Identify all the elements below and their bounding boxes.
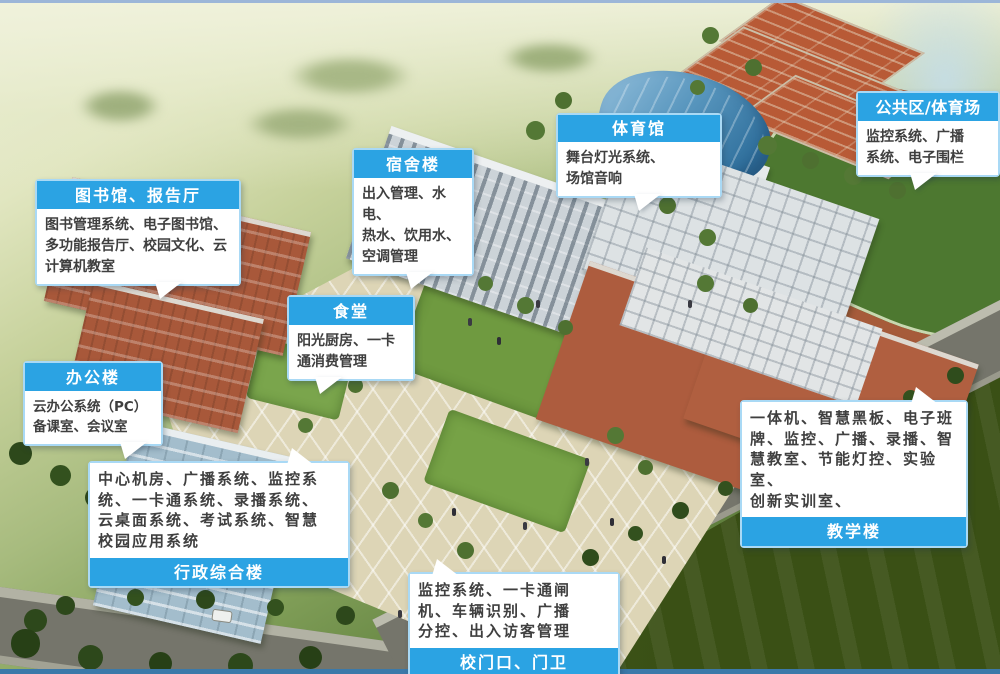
callout-tail-icon [910, 173, 937, 190]
callout-dormitory-body: 出入管理、水电、 热水、饮用水、 空调管理 [354, 178, 472, 274]
callout-admin-body: 中心机房、广播系统、监控系 统、一卡通系统、录播系统、 云桌面系统、考试系统、智… [90, 463, 348, 558]
callout-gymnasium: 体育馆 舞台灯光系统、 场馆音响 [556, 113, 722, 198]
callout-dormitory-title: 宿舍楼 [354, 150, 472, 178]
callout-office-body: 云办公系统（PC） 备课室、会议室 [25, 391, 161, 444]
callout-tail-icon [120, 442, 147, 459]
callout-canteen: 食堂 阳光厨房、一卡 通消费管理 [287, 295, 415, 381]
car-on-road [211, 609, 232, 624]
callout-admin-title: 行政综合楼 [90, 558, 348, 586]
callout-library: 图书馆、报告厅 图书管理系统、电子图书馆、 多功能报告厅、校园文化、云 计算机教… [35, 179, 241, 286]
callout-library-title: 图书馆、报告厅 [37, 181, 239, 209]
callout-gymnasium-body: 舞台灯光系统、 场馆音响 [558, 142, 720, 196]
callout-gate-body: 监控系统、一卡通闸 机、车辆识别、广播 分控、出入访客管理 [410, 574, 618, 648]
callout-tail-icon [406, 272, 433, 289]
callout-library-body: 图书管理系统、电子图书馆、 多功能报告厅、校园文化、云 计算机教室 [37, 209, 239, 284]
smart-campus-aerial-diagram: 图书馆、报告厅 图书管理系统、电子图书馆、 多功能报告厅、校园文化、云 计算机教… [0, 0, 1000, 674]
callout-public-area-body: 监控系统、广播 系统、电子围栏 [858, 121, 998, 175]
callout-teaching-body: 一体机、智慧黑板、电子班 牌、监控、广播、录播、智 慧教室、节能灯控、实验室、 … [742, 402, 966, 517]
callout-school-gate: 监控系统、一卡通闸 机、车辆识别、广播 分控、出入访客管理 校门口、门卫 [408, 572, 620, 674]
callout-tail-icon [287, 448, 314, 465]
callout-dormitory: 宿舍楼 出入管理、水电、 热水、饮用水、 空调管理 [352, 148, 474, 276]
callout-teaching-building: 一体机、智慧黑板、电子班 牌、监控、广播、录播、智 慧教室、节能灯控、实验室、 … [740, 400, 968, 548]
callout-tail-icon [155, 282, 182, 299]
callout-admin-complex: 中心机房、广播系统、监控系 统、一卡通系统、录播系统、 云桌面系统、考试系统、智… [88, 461, 350, 588]
callout-office-building: 办公楼 云办公系统（PC） 备课室、会议室 [23, 361, 163, 446]
callout-gate-title: 校门口、门卫 [410, 648, 618, 674]
callout-public-area-title: 公共区/体育场 [858, 93, 998, 121]
callout-canteen-title: 食堂 [289, 297, 413, 325]
callout-teaching-title: 教学楼 [742, 517, 966, 545]
callout-tail-icon [432, 559, 459, 576]
callout-public-area-stadium: 公共区/体育场 监控系统、广播 系统、电子围栏 [856, 91, 1000, 177]
callout-canteen-body: 阳光厨房、一卡 通消费管理 [289, 325, 413, 379]
callout-tail-icon [315, 377, 342, 394]
callout-tail-icon [911, 387, 938, 404]
callout-office-title: 办公楼 [25, 363, 161, 391]
top-border-line [0, 0, 1000, 3]
callout-gymnasium-title: 体育馆 [558, 115, 720, 142]
callout-tail-icon [634, 194, 661, 211]
